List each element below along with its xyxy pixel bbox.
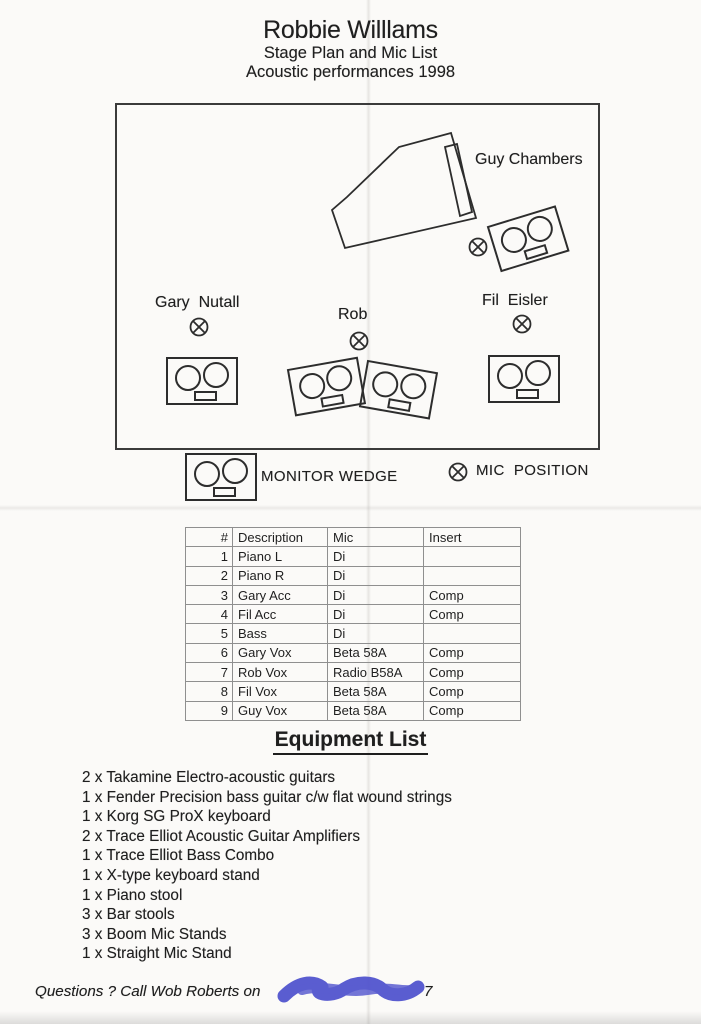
table-cell: 1 [186, 547, 233, 566]
table-cell: Comp [424, 643, 521, 662]
document-subtitle-1: Stage Plan and Mic List [0, 44, 701, 63]
table-row: 2Piano RDi [186, 566, 521, 585]
table-row: 7Rob VoxRadio B58AComp [186, 663, 521, 682]
monitor-wedge-icon [288, 358, 365, 415]
table-cell: Piano L [233, 547, 328, 566]
equipment-item: 1 x Piano stool [82, 886, 452, 906]
table-cell: Fil Acc [233, 605, 328, 624]
equipment-list: 2 x Takamine Electro-acoustic guitars1 x… [82, 768, 452, 964]
table-row: 4Fil AccDiComp [186, 605, 521, 624]
redaction-scribble [276, 972, 432, 1008]
mic-position-icon [191, 319, 208, 336]
monitor-wedge-icon [186, 454, 256, 500]
performer-label-fil-eisler: Fil Eisler [482, 292, 548, 310]
title-block: Robbie Willlams Stage Plan and Mic List … [0, 16, 701, 82]
document-subtitle-2: Acoustic performances 1998 [0, 63, 701, 82]
table-cell: Fil Vox [233, 682, 328, 701]
performer-label-guy-chambers: Guy Chambers [475, 151, 583, 169]
table-cell: 5 [186, 624, 233, 643]
equipment-list-heading: Equipment List [273, 728, 429, 755]
equipment-item: 1 x Fender Precision bass guitar c/w fla… [82, 788, 452, 808]
table-cell: Di [328, 566, 424, 585]
table-cell: Guy Vox [233, 701, 328, 720]
table-cell: Comp [424, 605, 521, 624]
table-row: 8Fil VoxBeta 58AComp [186, 682, 521, 701]
equipment-item: 3 x Bar stools [82, 905, 452, 925]
table-cell: Comp [424, 701, 521, 720]
table-cell: Piano R [233, 566, 328, 585]
table-row: 3Gary AccDiComp [186, 585, 521, 604]
table-cell [424, 624, 521, 643]
table-cell: 8 [186, 682, 233, 701]
equipment-heading-wrap: Equipment List [0, 728, 701, 755]
mic-position-icon [470, 239, 487, 256]
table-cell: Beta 58A [328, 643, 424, 662]
mic-position-icon [351, 333, 368, 350]
equipment-item: 1 x Trace Elliot Bass Combo [82, 846, 452, 866]
table-cell: Gary Acc [233, 585, 328, 604]
document-title: Robbie Willlams [0, 16, 701, 44]
table-cell: 4 [186, 605, 233, 624]
table-cell [424, 566, 521, 585]
table-cell: 3 [186, 585, 233, 604]
table-cell: Di [328, 547, 424, 566]
table-cell: Comp [424, 585, 521, 604]
footer-contact-line: Questions ? Call Wob Roberts on [35, 983, 260, 1000]
table-cell: Beta 58A [328, 701, 424, 720]
grand-piano-icon [332, 133, 476, 248]
mic-position-icon [450, 464, 467, 481]
col-header-mic: Mic [328, 528, 424, 547]
performer-label-rob: Rob [338, 306, 367, 324]
table-cell: Rob Vox [233, 663, 328, 682]
table-cell [424, 547, 521, 566]
table-cell: Di [328, 624, 424, 643]
table-cell: 7 [186, 663, 233, 682]
mic-position-icon [514, 316, 531, 333]
equipment-item: 2 x Trace Elliot Acoustic Guitar Amplifi… [82, 827, 452, 847]
legend-mic-position-label: MIC POSITION [476, 462, 589, 479]
stage-plan-diagram: Guy Chambers Gary Nutall Rob Fil Eisler [115, 103, 600, 450]
monitor-wedge-icon [360, 361, 437, 418]
table-row: 6Gary VoxBeta 58AComp [186, 643, 521, 662]
mic-table-body: 1Piano LDi2Piano RDi3Gary AccDiComp4Fil … [186, 547, 521, 721]
table-cell: 6 [186, 643, 233, 662]
table-cell: Bass [233, 624, 328, 643]
col-header-insert: Insert [424, 528, 521, 547]
col-header-number: # [186, 528, 233, 547]
table-cell: 2 [186, 566, 233, 585]
table-row: 9Guy VoxBeta 58AComp [186, 701, 521, 720]
table-cell: Comp [424, 663, 521, 682]
table-cell: Radio B58A [328, 663, 424, 682]
table-cell: Comp [424, 682, 521, 701]
monitor-wedge-icon [167, 358, 237, 404]
mic-list-table: # Description Mic Insert 1Piano LDi2Pian… [185, 527, 521, 721]
legend-monitor-wedge-label: MONITOR WEDGE [261, 468, 398, 485]
table-cell: Beta 58A [328, 682, 424, 701]
table-cell: Gary Vox [233, 643, 328, 662]
equipment-item: 1 x Korg SG ProX keyboard [82, 807, 452, 827]
col-header-description: Description [233, 528, 328, 547]
table-header-row: # Description Mic Insert [186, 528, 521, 547]
table-row: 1Piano LDi [186, 547, 521, 566]
scan-edge-shadow [0, 1011, 701, 1024]
monitor-wedge-icon [489, 356, 559, 402]
equipment-item: 1 x X-type keyboard stand [82, 866, 452, 886]
equipment-item: 3 x Boom Mic Stands [82, 925, 452, 945]
equipment-item: 1 x Straight Mic Stand [82, 944, 452, 964]
table-cell: Di [328, 605, 424, 624]
monitor-wedge-icon [488, 207, 568, 271]
equipment-item: 2 x Takamine Electro-acoustic guitars [82, 768, 452, 788]
scanned-stage-plan-document: Robbie Willlams Stage Plan and Mic List … [0, 0, 701, 1024]
performer-label-gary-nutall: Gary Nutall [155, 294, 239, 312]
table-cell: 9 [186, 701, 233, 720]
table-cell: Di [328, 585, 424, 604]
table-row: 5BassDi [186, 624, 521, 643]
